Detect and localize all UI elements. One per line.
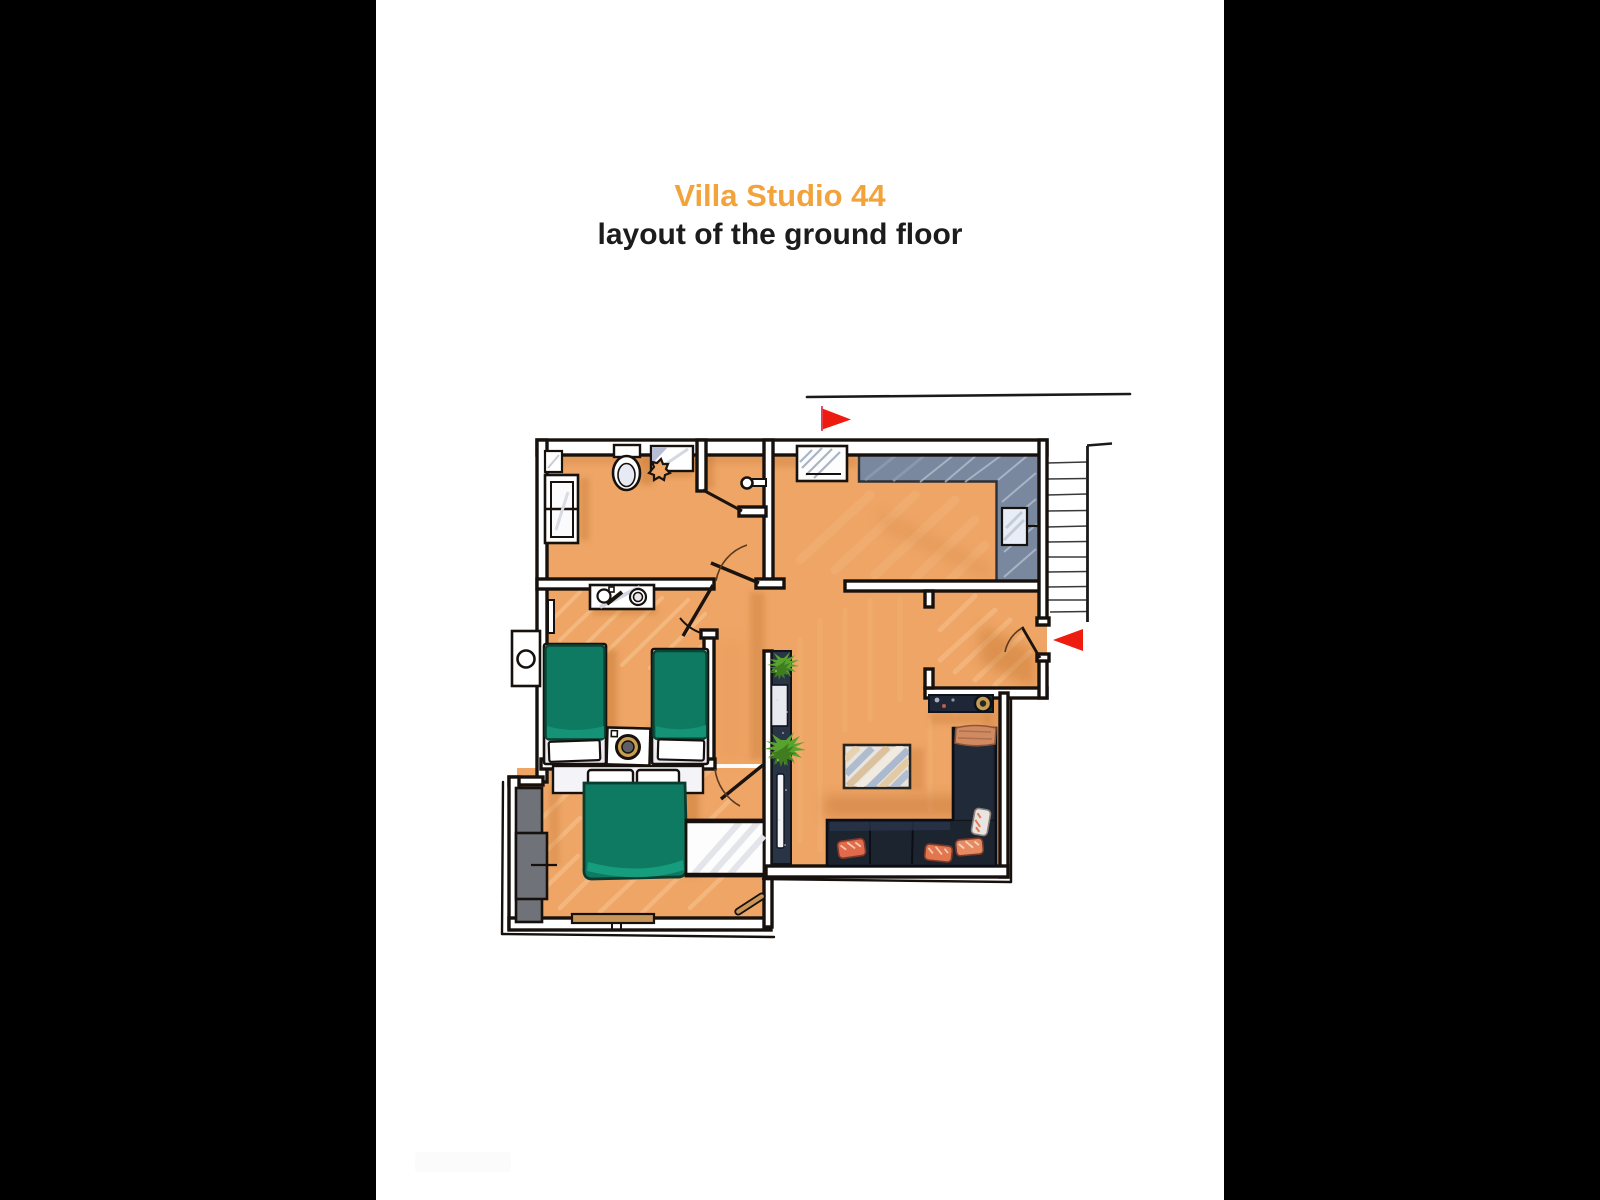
svg-text:Villa Studio 44: Villa Studio 44: [674, 178, 886, 213]
svg-text:layout of the ground floor: layout of the ground floor: [598, 218, 963, 251]
